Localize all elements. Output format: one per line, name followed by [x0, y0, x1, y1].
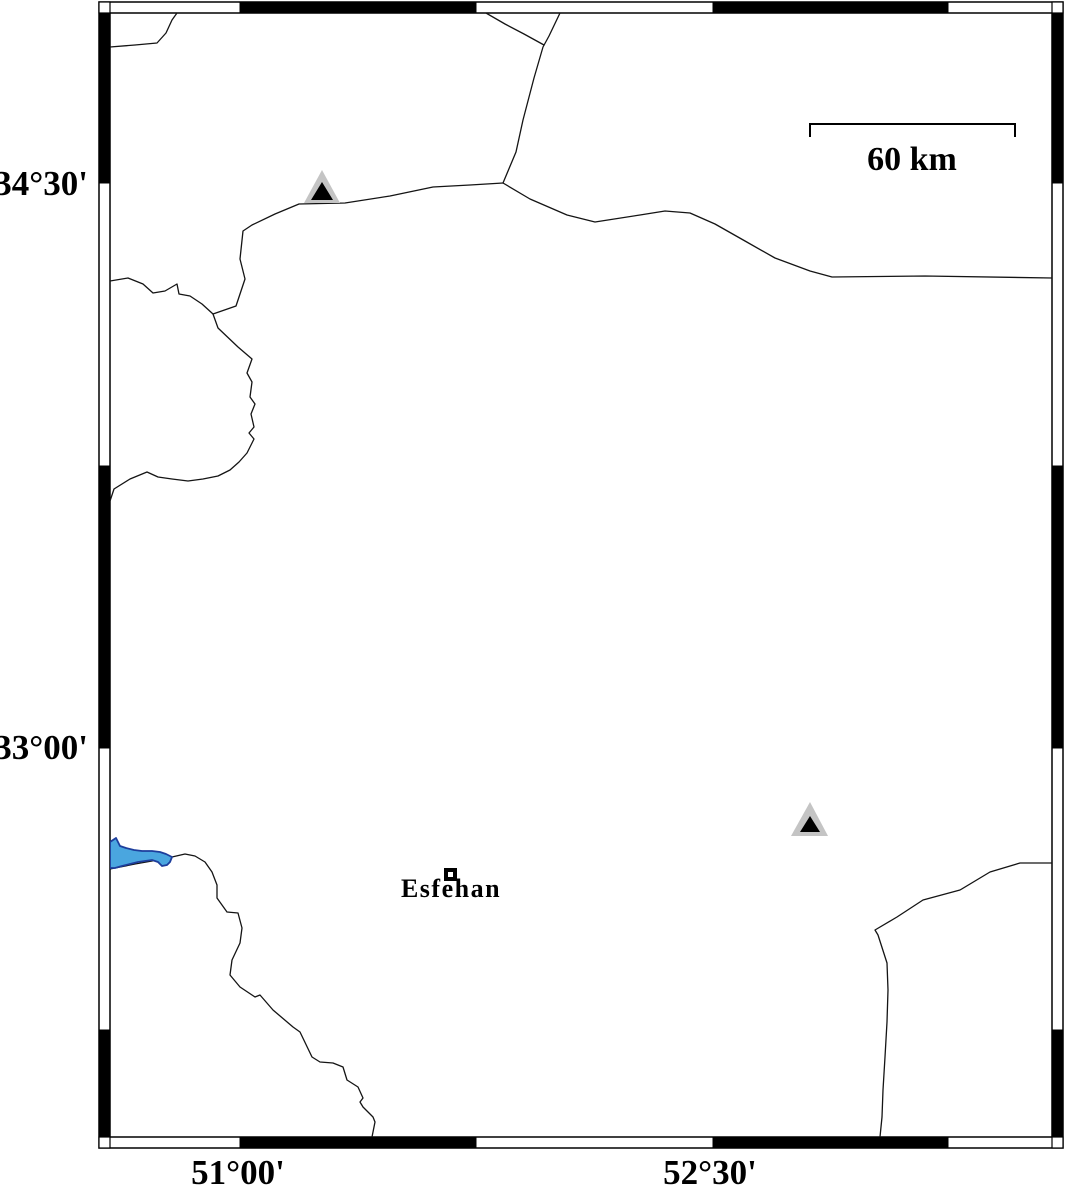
- map-canvas: Esfehan 60 km 34°30' 33°00' 51°00' 52°30…: [0, 0, 1066, 1187]
- frame-tick-segment: [1052, 1030, 1063, 1137]
- frame-tick-segment: [99, 466, 110, 748]
- frame-corner: [99, 2, 110, 13]
- frame-tick-segment: [240, 2, 476, 13]
- frame-tick-segment: [713, 2, 948, 13]
- frame-corner: [1052, 1137, 1063, 1148]
- longitude-label: 51°00': [191, 1153, 285, 1187]
- frame-tick-segment: [99, 1030, 110, 1137]
- frame-tick-segment: [1052, 13, 1063, 183]
- frame-tick-segment: [240, 1137, 476, 1148]
- scale-bar-label: 60 km: [867, 141, 957, 178]
- frame-inner-rect: [110, 13, 1052, 1137]
- latitude-label: 34°30': [0, 164, 88, 203]
- latitude-label: 33°00': [0, 728, 88, 767]
- city-label-esfehan: Esfehan: [401, 874, 501, 903]
- frame-corner: [1052, 2, 1063, 13]
- longitude-label: 52°30': [663, 1153, 757, 1187]
- frame-tick-segment: [1052, 466, 1063, 748]
- map-page: Esfehan 60 km 34°30' 33°00' 51°00' 52°30…: [0, 0, 1066, 1187]
- frame-corner: [99, 1137, 110, 1148]
- frame-tick-segment: [99, 13, 110, 183]
- frame-tick-segment: [713, 1137, 948, 1148]
